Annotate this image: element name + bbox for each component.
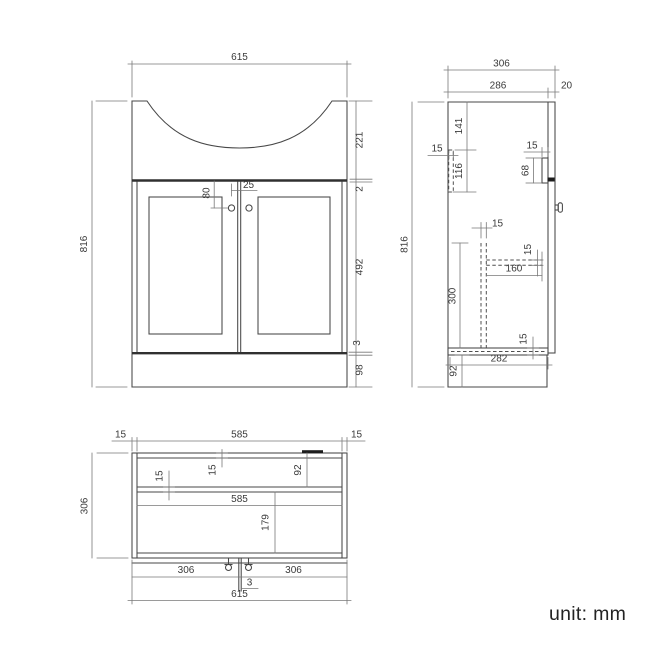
plan-knob-left (225, 559, 232, 571)
side-dim-rail-top-offset: 141 (454, 117, 465, 134)
front-dim-knob-top-offset: 80 (202, 187, 213, 199)
side-view: 306 286 20 816 141 116 15 15 68 15 300 (400, 59, 573, 388)
side-dim-door-thickness: 20 (561, 81, 573, 92)
front-dim-overall-height: 816 (79, 235, 90, 252)
plan-dim-overall-depth: 306 (80, 497, 91, 514)
front-dim-basin-height: 221 (355, 131, 366, 148)
plan-dim-right-panel: 15 (351, 430, 363, 441)
plan-dim-front-depth: 179 (261, 514, 272, 531)
front-dim-counter-edge: 2 (355, 186, 366, 192)
tap-position-mark (302, 450, 323, 453)
plan-dim-mid-inner-width: 585 (231, 494, 248, 505)
front-dim-door-bottom-gap: 3 (352, 340, 363, 346)
side-dim-overall-height: 816 (400, 236, 411, 253)
technical-drawing: 615 816 221 2 492 3 98 80 25 (0, 0, 650, 650)
plan-dim-inner-width: 585 (231, 430, 248, 441)
knob-profile-cap (558, 203, 562, 212)
plan-dim-rail-thickness: 15 (155, 470, 166, 482)
front-dim-overall-width: 615 (231, 52, 248, 63)
unit-label: unit: mm (549, 603, 626, 626)
plan-dim-left-door-width: 306 (178, 565, 195, 576)
side-dim-bottom-inner-depth: 282 (491, 354, 508, 365)
side-dim-plinth-height: 92 (449, 365, 460, 377)
plan-knob-right (245, 559, 252, 571)
door-knob-left (228, 205, 234, 211)
front-dim-knob-side-offset: 25 (243, 180, 255, 191)
side-dim-divider-thickness: 15 (492, 219, 504, 230)
side-dim-overall-depth: 306 (493, 59, 510, 70)
side-dim-rail-height: 116 (454, 163, 465, 179)
front-dim-door-height: 492 (355, 258, 366, 275)
front-dim-plinth-height: 98 (355, 364, 366, 376)
side-dim-bottom-thickness: 15 (519, 333, 530, 345)
plan-dim-right-door-width: 306 (285, 565, 302, 576)
plan-dim-back-depth: 92 (293, 464, 304, 476)
plan-dim-overall-width: 615 (231, 589, 248, 600)
side-dim-shelf-depth: 160 (506, 264, 523, 275)
right-door-panel (258, 197, 330, 334)
plan-dim-door-gap: 3 (247, 578, 253, 589)
catch-plate (542, 158, 548, 183)
side-dim-carcass-depth: 286 (490, 81, 507, 92)
side-dim-catch-thickness: 15 (526, 141, 538, 152)
plan-dim-left-panel: 15 (115, 430, 127, 441)
door-catch-mark (548, 178, 555, 182)
hanging-rail-hidden (449, 150, 454, 192)
plan-view: 15 585 15 306 15 15 92 585 179 306 306 3… (80, 430, 366, 605)
basin-top-outline (132, 101, 347, 148)
side-dim-shelf-thickness: 15 (523, 244, 534, 256)
door-knob-right (246, 205, 252, 211)
front-view: 615 816 221 2 492 3 98 80 25 (79, 52, 372, 387)
plan-dim-top-panel: 15 (208, 464, 219, 476)
left-door-panel (149, 197, 222, 334)
side-dim-divider-height: 300 (448, 287, 459, 304)
side-dim-catch-height: 68 (521, 165, 532, 177)
side-dim-rail-thickness: 15 (431, 144, 443, 155)
drawing-svg: 615 816 221 2 492 3 98 80 25 (0, 0, 650, 650)
